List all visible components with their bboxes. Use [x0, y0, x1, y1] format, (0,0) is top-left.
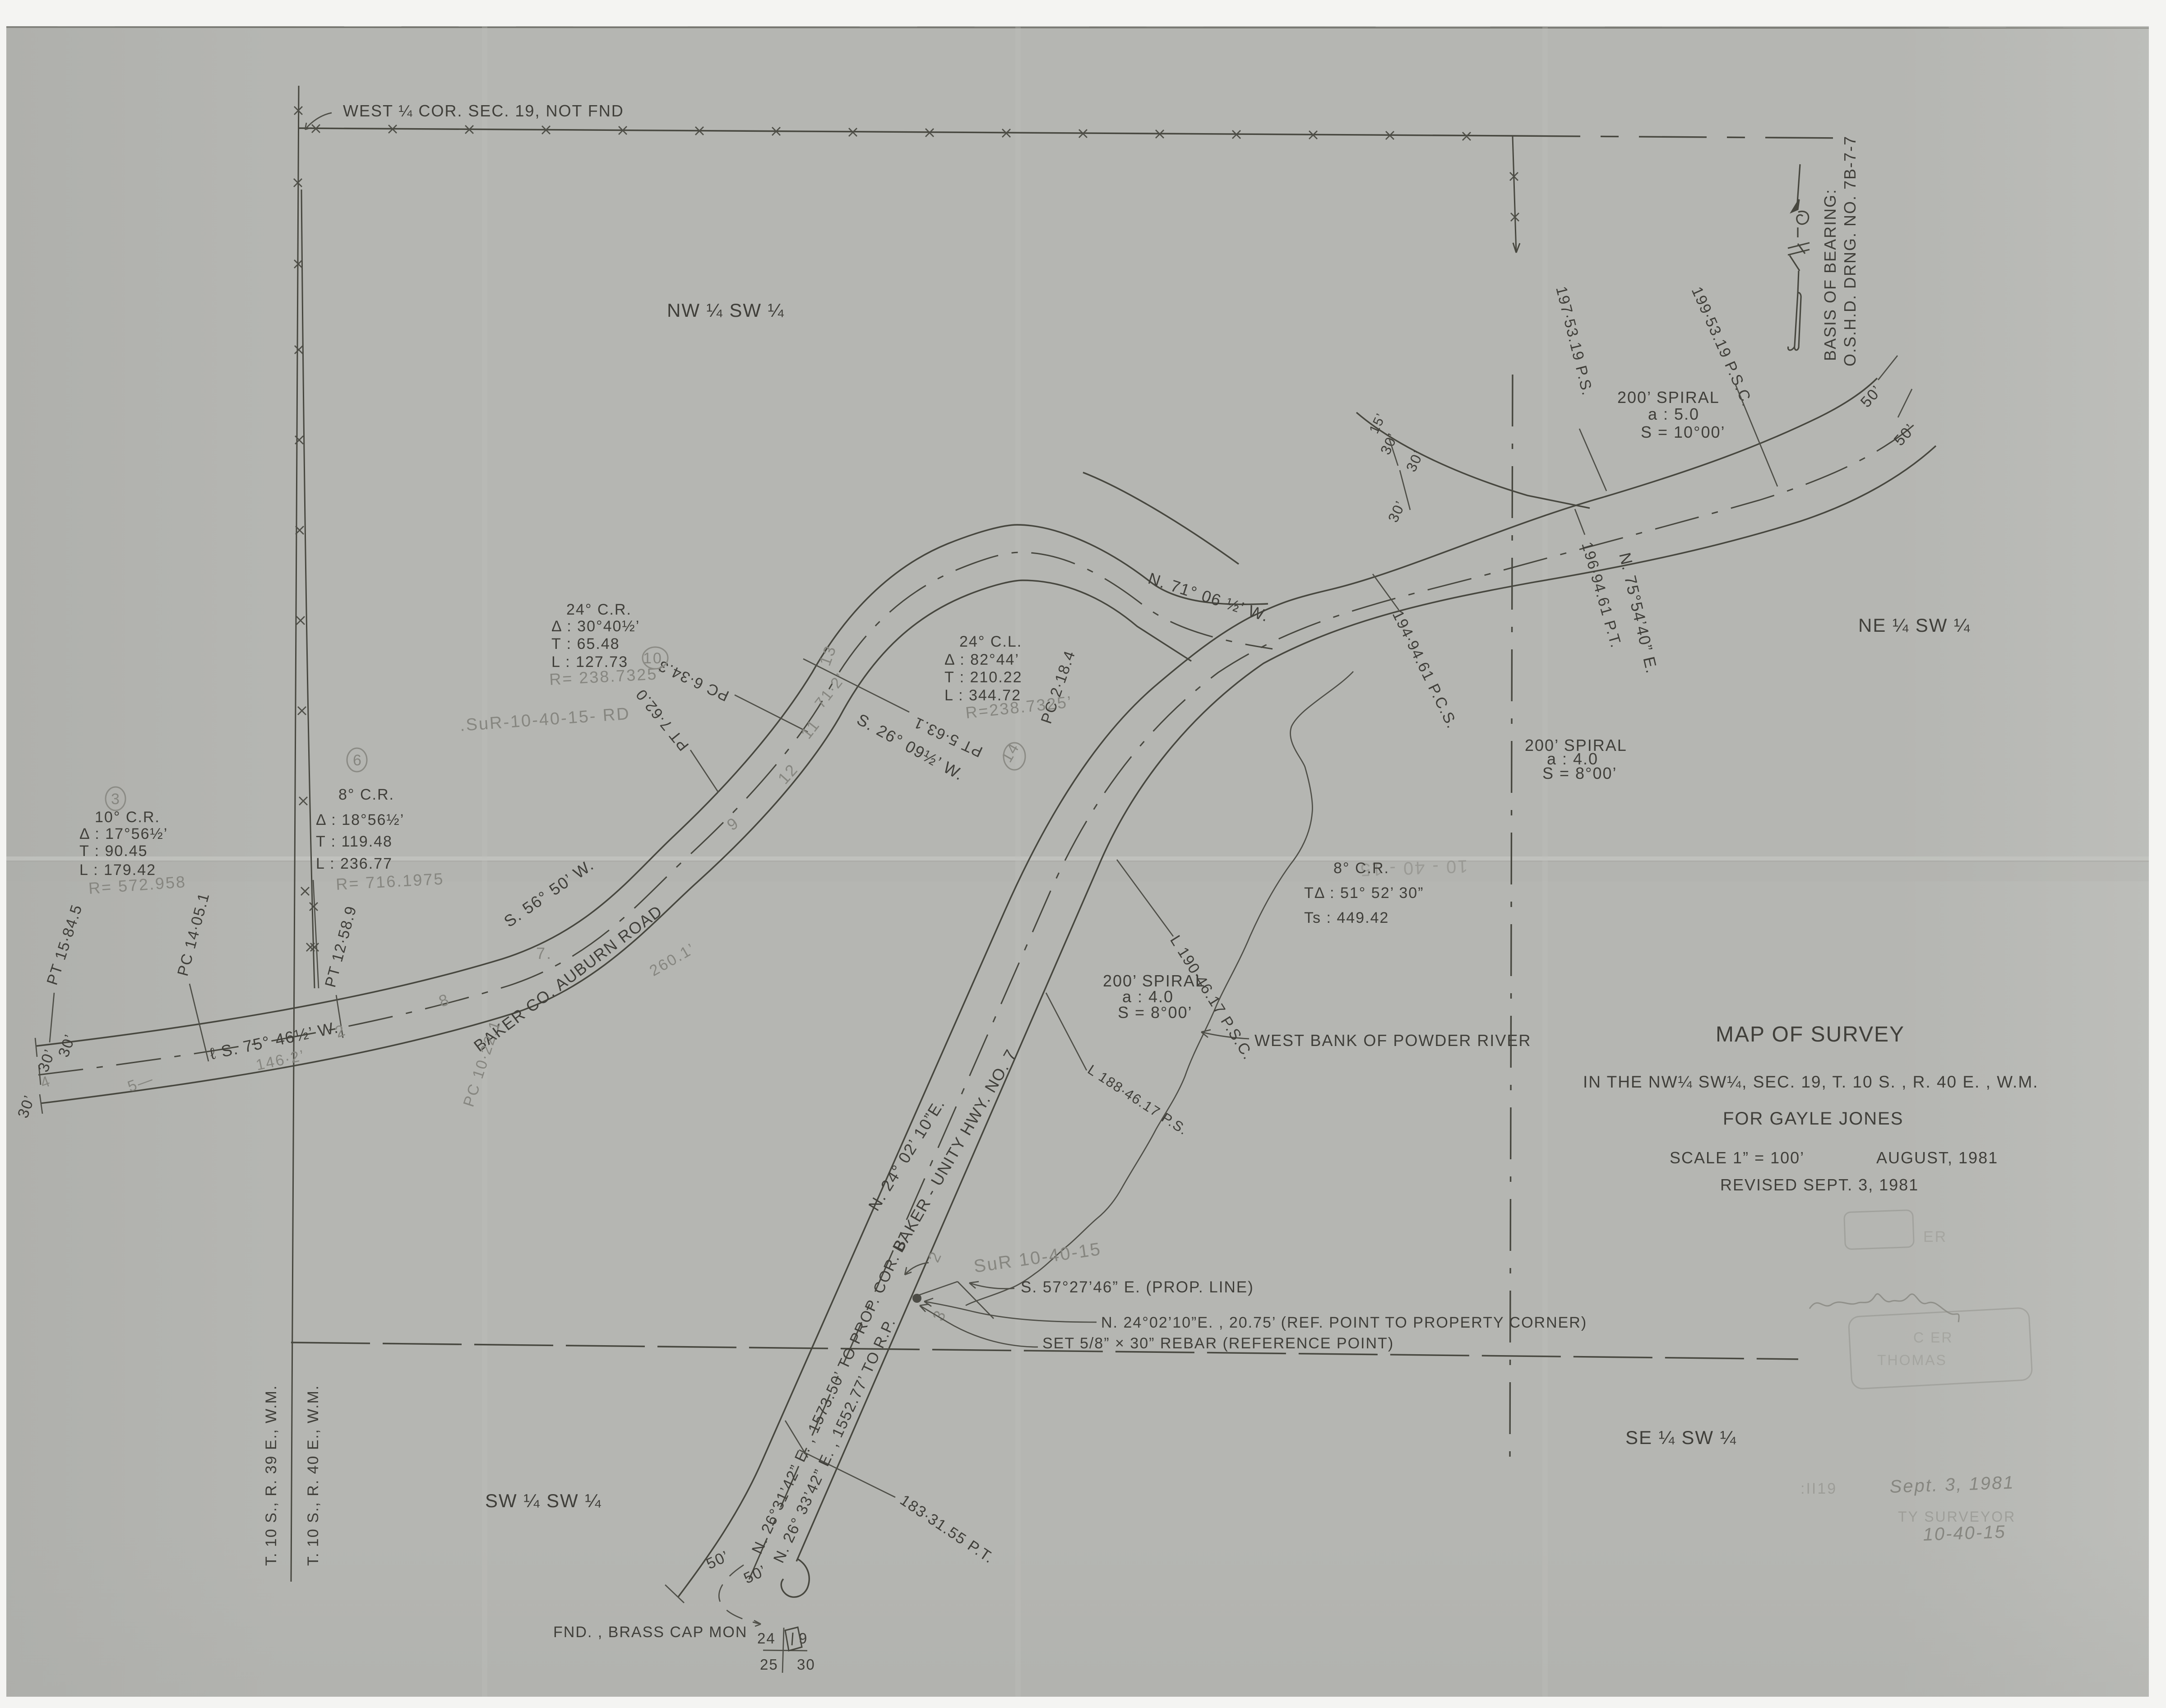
svg-text:WEST BANK OF POWDER RIVER: WEST BANK OF POWDER RIVER — [1254, 1031, 1531, 1050]
svg-text:MAP OF SURVEY: MAP OF SURVEY — [1716, 1023, 1905, 1046]
svg-text:3: 3 — [111, 791, 121, 808]
svg-text:THOMAS: THOMAS — [1877, 1352, 1947, 1368]
svg-text:O.S.H.D. DRNG. NO. 7B-7-7: O.S.H.D. DRNG. NO. 7B-7-7 — [1841, 135, 1859, 366]
svg-text:25: 25 — [760, 1656, 778, 1673]
svg-text:Δ : 30°40½’: Δ : 30°40½’ — [551, 618, 640, 635]
svg-text:SW ¼ SW ¼: SW ¼ SW ¼ — [485, 1490, 602, 1511]
svg-text:ER: ER — [1923, 1228, 1947, 1245]
svg-text:NW ¼ SW ¼: NW ¼ SW ¼ — [667, 300, 785, 321]
svg-text:SE ¼ SW ¼: SE ¼ SW ¼ — [1625, 1427, 1737, 1448]
svg-text:C ER: C ER — [1913, 1329, 1953, 1346]
svg-text:8° C.R.: 8° C.R. — [338, 786, 394, 803]
svg-text:WEST ¼ COR. SEC. 19, NOT FND: WEST ¼ COR. SEC. 19, NOT FND — [343, 102, 624, 120]
svg-text:Δ : 17°56½’: Δ : 17°56½’ — [79, 825, 168, 842]
svg-text:BASIS OF BEARING:: BASIS OF BEARING: — [1821, 189, 1839, 361]
svg-text:N. 24°02’10”E. , 20.75’ (REF.: N. 24°02’10”E. , 20.75’ (REF. POINT TO P… — [1101, 1314, 1587, 1331]
svg-text:T : 210.22: T : 210.22 — [944, 669, 1023, 686]
svg-text:AUGUST, 1981: AUGUST, 1981 — [1876, 1148, 1998, 1167]
svg-text::II19: :II19 — [1800, 1480, 1837, 1497]
svg-text:NE ¼ SW ¼: NE ¼ SW ¼ — [1858, 615, 1971, 636]
svg-text:200’ SPIRAL: 200’ SPIRAL — [1617, 388, 1720, 407]
svg-text:a : 5.0: a : 5.0 — [1648, 405, 1699, 423]
svg-text:IN THE NW¼ SW¼, SEC. 19, T: IN THE NW¼ SW¼, SEC. 19, T. 10 S. , R. 4… — [1583, 1073, 2038, 1091]
svg-text:30: 30 — [797, 1656, 815, 1673]
svg-text:REVISED SEPT. 3, 1981: REVISED SEPT. 3, 1981 — [1720, 1176, 1919, 1194]
svg-text:T : 119.48: T : 119.48 — [316, 833, 393, 850]
svg-text:Ts : 449.42: Ts : 449.42 — [1304, 909, 1389, 926]
svg-text:S = 8°00’: S = 8°00’ — [1118, 1003, 1193, 1022]
svg-text:SCALE 1” = 100’: SCALE 1” = 100’ — [1670, 1148, 1805, 1167]
svg-text:T : 90.45: T : 90.45 — [79, 842, 148, 860]
svg-text:L : 236.77: L : 236.77 — [316, 855, 393, 872]
svg-text:10: 10 — [643, 650, 663, 667]
svg-text:T : 65.48: T : 65.48 — [551, 635, 620, 653]
svg-text:T. 10 S., R. 39 E., W.M.: T. 10 S., R. 39 E., W.M. — [263, 1385, 280, 1566]
svg-text:TΔ : 51° 52’ 30”: TΔ : 51° 52’ 30” — [1304, 884, 1424, 902]
svg-text:Δ : 82°44’: Δ : 82°44’ — [944, 651, 1019, 668]
svg-text:24: 24 — [757, 1630, 776, 1647]
svg-text:10-40-15: 10-40-15 — [1923, 1522, 2007, 1545]
svg-text:24° C.L.: 24° C.L. — [959, 633, 1022, 650]
svg-text:S = 8°00’: S = 8°00’ — [1542, 764, 1617, 782]
svg-text:S. 57°27’46” E. (PROP. LINE): S. 57°27’46” E. (PROP. LINE) — [1021, 1278, 1254, 1296]
svg-text:FOR GAYLE JONES: FOR GAYLE JONES — [1723, 1109, 1903, 1129]
svg-text:8° C.R.: 8° C.R. — [1333, 860, 1389, 877]
svg-text:S = 10°00’: S = 10°00’ — [1641, 423, 1726, 441]
svg-text:24° C.R.: 24° C.R. — [566, 601, 632, 618]
svg-text:Δ : 18°56½’: Δ : 18°56½’ — [316, 811, 404, 829]
svg-text:SET 5/8” × 30” REBAR (REFERENC: SET 5/8” × 30” REBAR (REFERENCE POINT) — [1042, 1335, 1394, 1352]
svg-text:T. 10 S., R. 40 E., W.M.: T. 10 S., R. 40 E., W.M. — [305, 1385, 322, 1566]
svg-text:FND. , BRASS CAP MON: FND. , BRASS CAP MON — [553, 1624, 747, 1641]
svg-text:10° C.R.: 10° C.R. — [95, 809, 160, 826]
svg-text:7.: 7. — [536, 944, 552, 963]
svg-text:6: 6 — [353, 752, 363, 769]
